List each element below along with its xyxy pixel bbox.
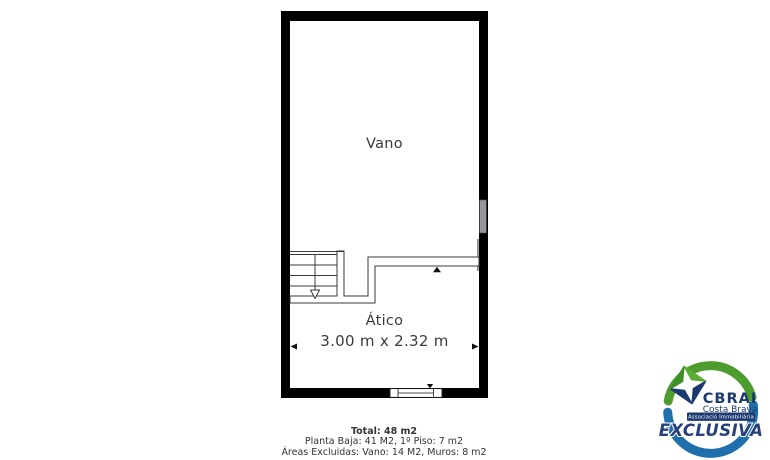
floorplan-page: Vano Ático 3.00 m x 2.32 m Total: 48 m2 … xyxy=(0,0,770,460)
logo-exclusiva-badge: EXCLUSIVA xyxy=(659,421,764,440)
logo-association-text: Associació Immobiliària xyxy=(688,414,754,421)
window-right xyxy=(480,200,487,233)
room-dimensions-atico: 3.00 m x 2.32 m xyxy=(290,332,479,350)
room-label-vano: Vano xyxy=(290,136,479,152)
window-bottom xyxy=(390,389,442,398)
room-label-atico-block: Ático 3.00 m x 2.32 m xyxy=(290,313,479,350)
area-summary: Total: 48 m2 Planta Baja: 41 M2, 1º Piso… xyxy=(234,427,534,458)
room-label-atico: Ático xyxy=(290,313,479,329)
summary-excluded: Áreas Excluidas: Vano: 14 M2, Muros: 8 m… xyxy=(234,448,534,458)
agency-logo: CBRAI Costa Brava Associació Immobiliàri… xyxy=(648,352,770,460)
